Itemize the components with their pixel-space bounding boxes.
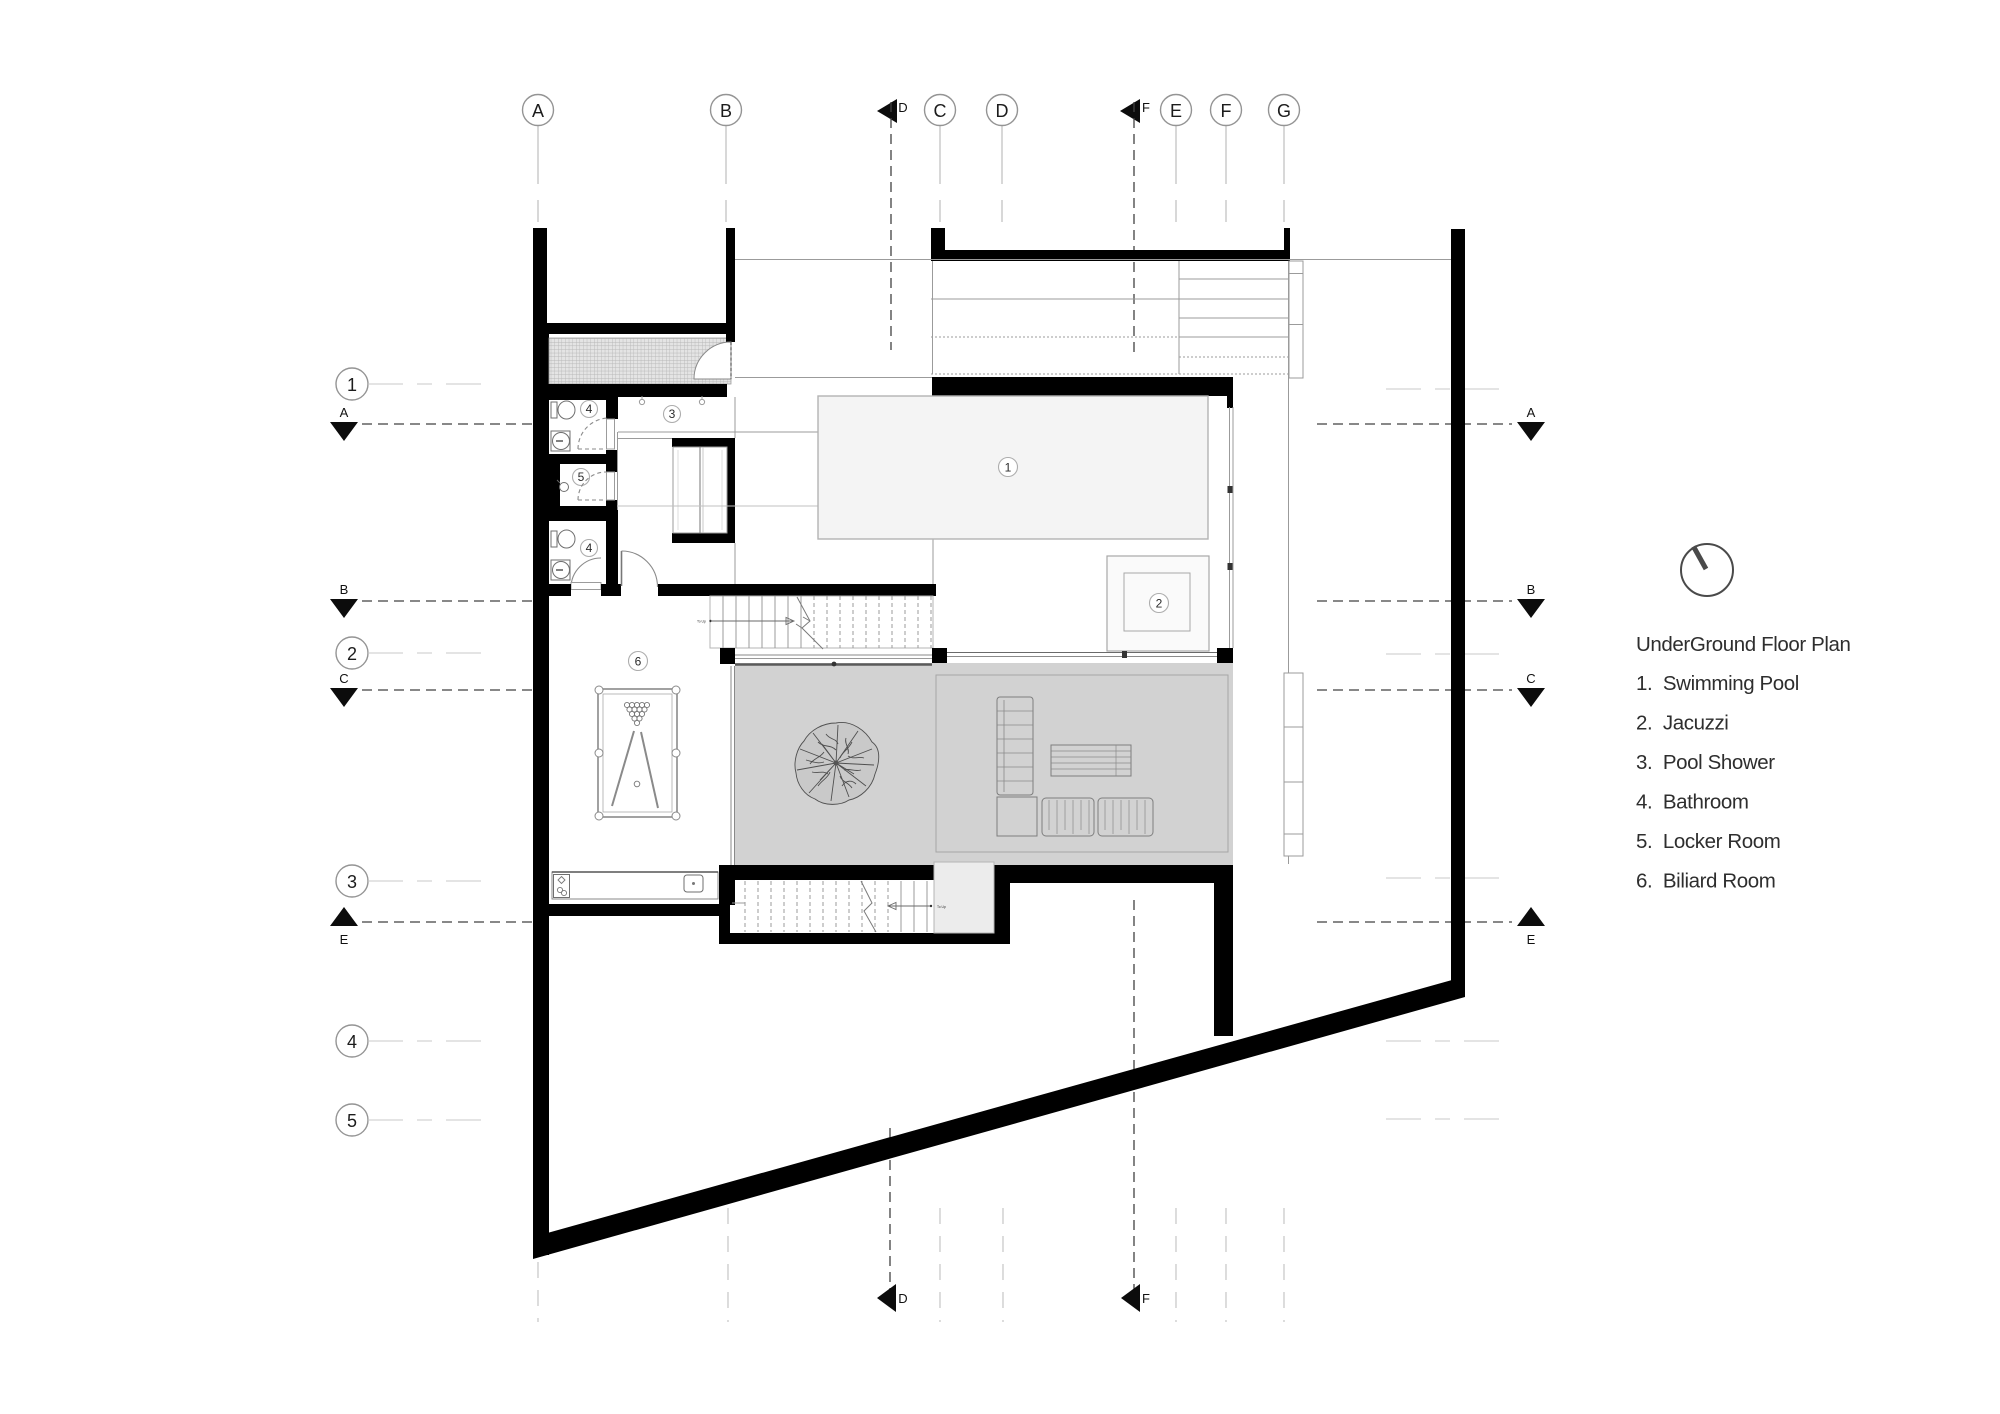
svg-text:E: E	[340, 932, 349, 947]
svg-text:E: E	[1527, 932, 1536, 947]
svg-text:1: 1	[347, 375, 357, 395]
svg-text:2: 2	[347, 644, 357, 664]
svg-text:D: D	[996, 101, 1009, 121]
svg-text:1: 1	[1005, 461, 1012, 475]
svg-text:To Up: To Up	[937, 905, 946, 909]
svg-text:1. Swimming Pool: 1. Swimming Pool	[1636, 672, 1799, 695]
svg-text:C: C	[339, 671, 348, 686]
svg-text:2: 2	[1156, 597, 1163, 611]
svg-text:2. Jacuzzi: 2. Jacuzzi	[1636, 712, 1728, 735]
svg-text:To Up: To Up	[697, 620, 706, 624]
svg-text:6: 6	[635, 655, 642, 669]
svg-text:D: D	[898, 100, 907, 115]
svg-text:F: F	[1142, 1291, 1150, 1306]
svg-text:5: 5	[578, 470, 585, 484]
svg-text:A: A	[1527, 405, 1536, 420]
svg-text:3. Pool Shower: 3. Pool Shower	[1636, 751, 1775, 774]
svg-text:B: B	[1527, 582, 1536, 597]
svg-text:6. Biliard Room: 6. Biliard Room	[1636, 870, 1775, 893]
svg-text:F: F	[1142, 100, 1150, 115]
svg-text:A: A	[532, 101, 544, 121]
svg-text:4: 4	[586, 402, 593, 416]
svg-text:4: 4	[586, 541, 593, 555]
svg-text:C: C	[1526, 671, 1535, 686]
svg-text:3: 3	[669, 407, 676, 421]
svg-text:G: G	[1277, 101, 1291, 121]
svg-text:4: 4	[347, 1032, 357, 1052]
svg-text:B: B	[340, 582, 349, 597]
svg-text:D: D	[898, 1291, 907, 1306]
svg-text:3: 3	[347, 872, 357, 892]
svg-text:4. Bathroom: 4. Bathroom	[1636, 791, 1749, 814]
svg-text:5. Locker Room: 5. Locker Room	[1636, 830, 1780, 853]
svg-text:UnderGround Floor Plan: UnderGround Floor Plan	[1636, 633, 1851, 656]
svg-text:F: F	[1221, 101, 1232, 121]
svg-text:B: B	[720, 101, 732, 121]
svg-text:C: C	[934, 101, 947, 121]
svg-text:E: E	[1170, 101, 1182, 121]
svg-text:5: 5	[347, 1111, 357, 1131]
svg-text:A: A	[340, 405, 349, 420]
